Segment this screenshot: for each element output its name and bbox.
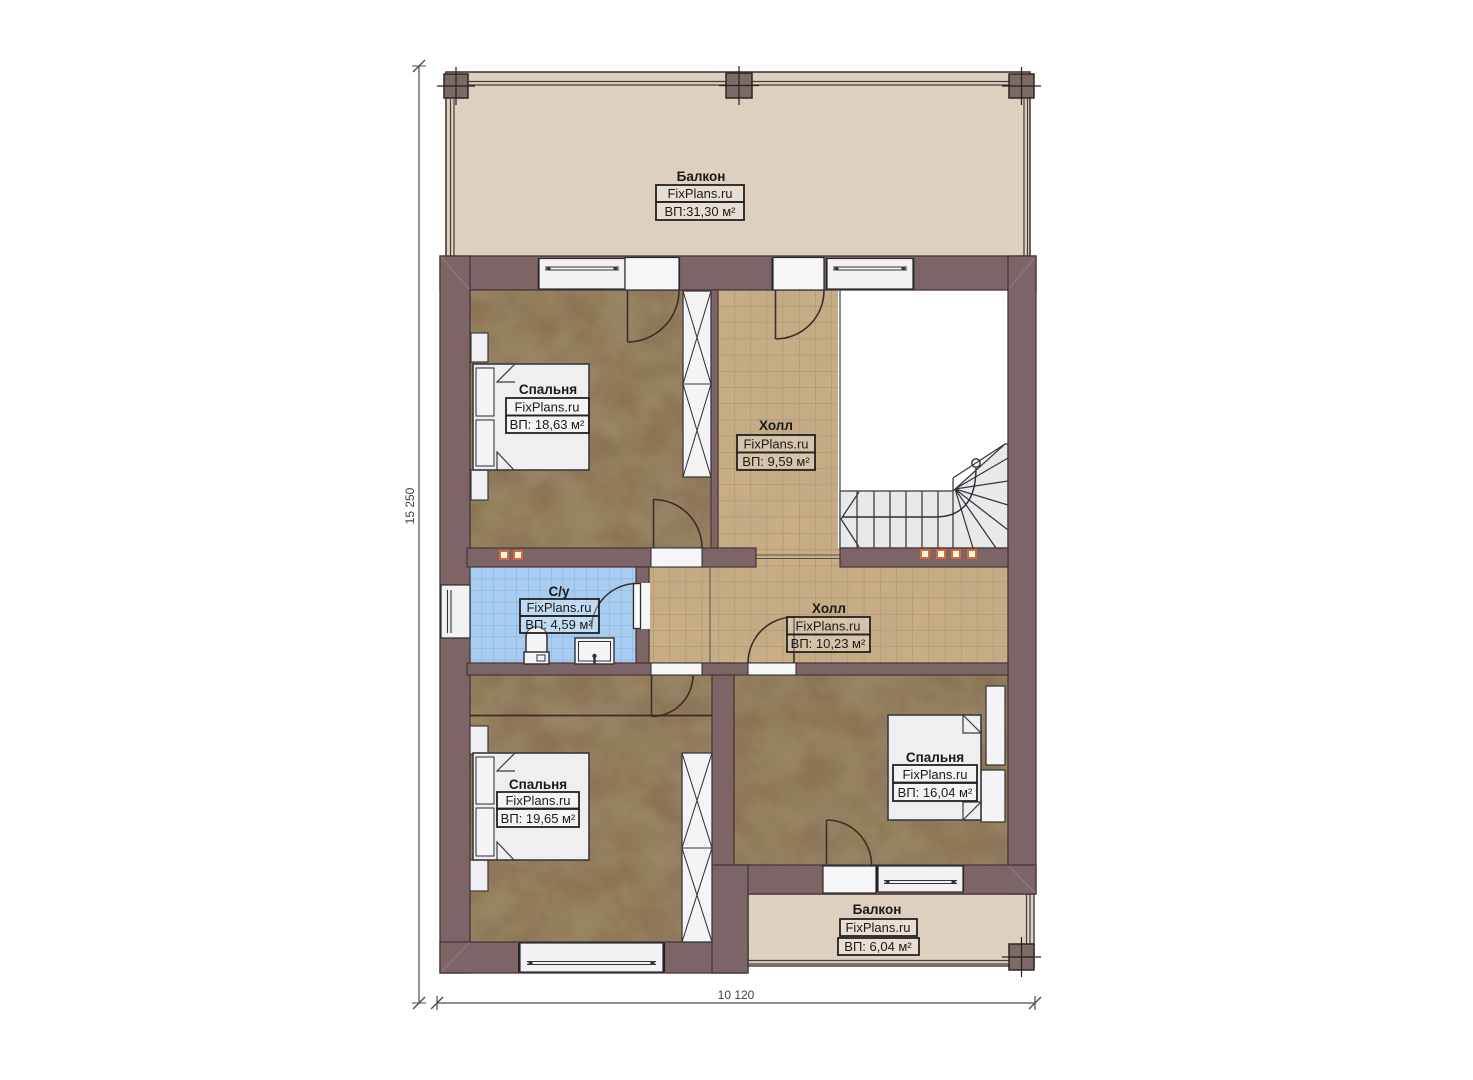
svg-text:10 120: 10 120: [718, 988, 755, 1002]
svg-text:Спальня: Спальня: [519, 382, 577, 397]
svg-text:ВП: 16,04 м²: ВП: 16,04 м²: [898, 785, 973, 800]
svg-text:Холл: Холл: [759, 418, 793, 433]
svg-text:С/у: С/у: [548, 584, 570, 599]
svg-text:15 250: 15 250: [403, 487, 417, 524]
svg-text:FixPlans.ru: FixPlans.ru: [514, 400, 579, 415]
svg-text:Холл: Холл: [812, 601, 846, 616]
svg-text:Балкон: Балкон: [853, 902, 902, 917]
svg-text:ВП:31,30 м²: ВП:31,30 м²: [664, 204, 736, 219]
svg-text:FixPlans.ru: FixPlans.ru: [667, 186, 732, 201]
svg-text:Спальня: Спальня: [509, 777, 567, 792]
svg-text:ВП: 18,63 м²: ВП: 18,63 м²: [510, 417, 585, 432]
svg-text:FixPlans.ru: FixPlans.ru: [845, 920, 910, 935]
svg-text:ВП: 4,59 м²: ВП: 4,59 м²: [525, 617, 593, 632]
svg-text:FixPlans.ru: FixPlans.ru: [526, 600, 591, 615]
svg-text:ВП: 9,59 м²: ВП: 9,59 м²: [742, 454, 810, 469]
svg-text:FixPlans.ru: FixPlans.ru: [795, 619, 860, 634]
svg-text:ВП: 19,65 м²: ВП: 19,65 м²: [501, 811, 576, 826]
svg-text:FixPlans.ru: FixPlans.ru: [505, 793, 570, 808]
svg-text:ВП: 10,23 м²: ВП: 10,23 м²: [791, 636, 866, 651]
svg-text:FixPlans.ru: FixPlans.ru: [743, 437, 808, 452]
svg-text:ВП: 6,04 м²: ВП: 6,04 м²: [844, 939, 912, 954]
svg-text:FixPlans.ru: FixPlans.ru: [902, 767, 967, 782]
svg-text:Спальня: Спальня: [906, 750, 964, 765]
svg-text:Балкон: Балкон: [677, 169, 726, 184]
